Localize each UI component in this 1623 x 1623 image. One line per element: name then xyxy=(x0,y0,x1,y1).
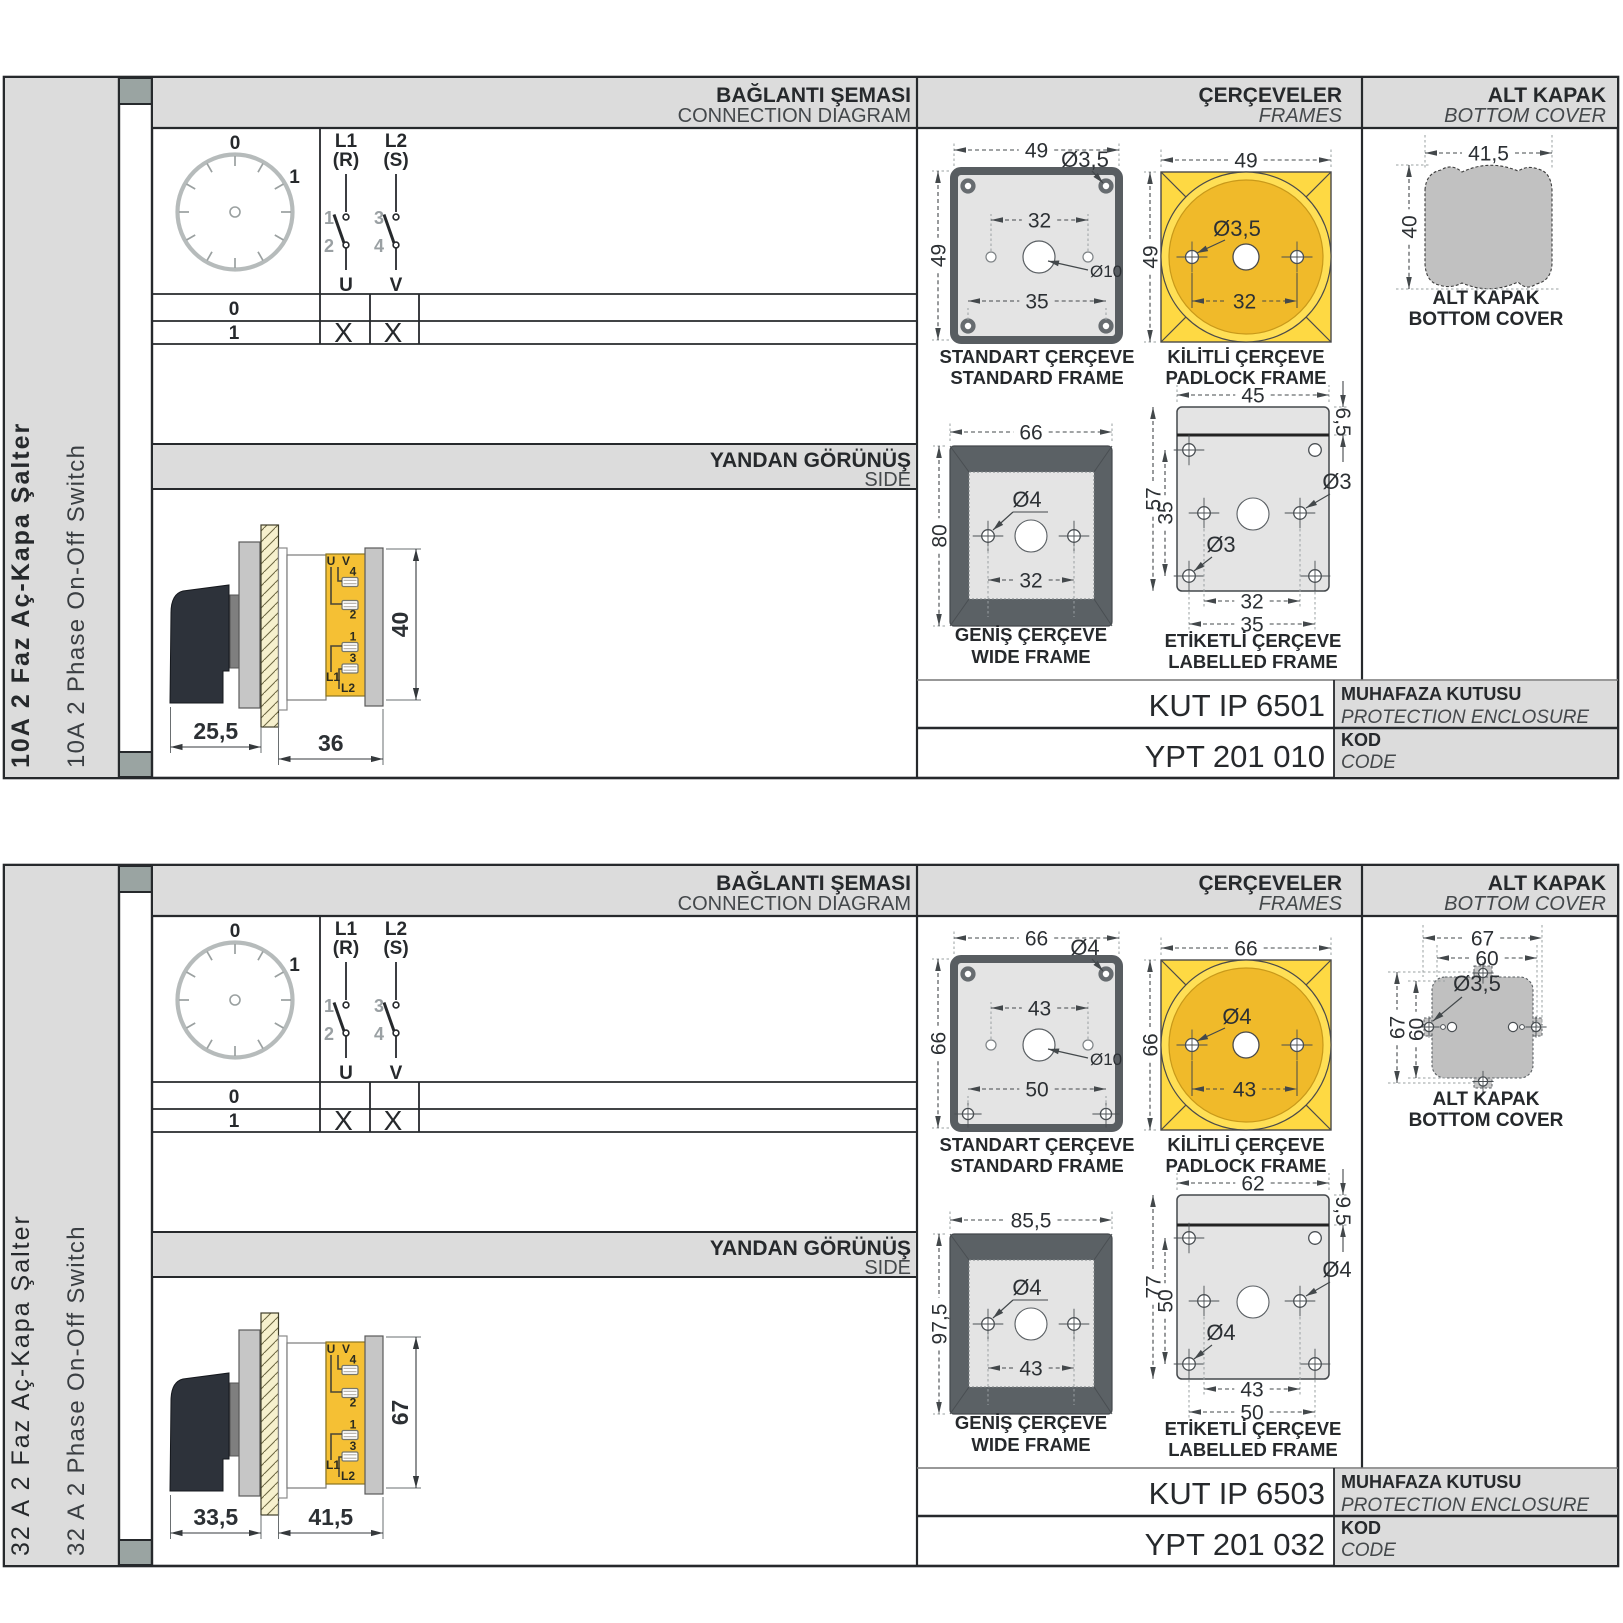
svg-text:10A 2 Phase On-Off Switch: 10A 2 Phase On-Off Switch xyxy=(63,444,90,768)
svg-text:KUT IP 6501: KUT IP 6501 xyxy=(1149,688,1325,723)
svg-text:U: U xyxy=(339,1063,353,1084)
svg-text:SIDE: SIDE xyxy=(864,469,911,491)
svg-text:BOTTOM COVER: BOTTOM COVER xyxy=(1409,1110,1564,1131)
svg-text:67: 67 xyxy=(387,1400,413,1426)
svg-text:66: 66 xyxy=(1234,938,1257,961)
svg-text:1: 1 xyxy=(350,1418,357,1432)
svg-text:L2: L2 xyxy=(385,919,407,940)
svg-text:MUHAFAZA KUTUSU: MUHAFAZA KUTUSU xyxy=(1341,684,1521,704)
svg-text:STANDART ÇERÇEVE: STANDART ÇERÇEVE xyxy=(940,1134,1135,1155)
svg-text:50: 50 xyxy=(1025,1079,1048,1102)
svg-text:ÇERÇEVELER: ÇERÇEVELER xyxy=(1198,84,1342,107)
svg-text:BOTTOM COVER: BOTTOM COVER xyxy=(1409,309,1564,330)
svg-text:Ø3,5: Ø3,5 xyxy=(1061,147,1109,172)
svg-text:66: 66 xyxy=(1019,422,1042,445)
svg-text:KİLİTLİ ÇERÇEVE: KİLİTLİ ÇERÇEVE xyxy=(1167,1134,1324,1155)
svg-text:Ø10: Ø10 xyxy=(1090,1050,1122,1069)
svg-text:L1: L1 xyxy=(326,1458,340,1472)
svg-text:1: 1 xyxy=(324,996,334,1016)
svg-text:2: 2 xyxy=(350,1396,357,1410)
svg-text:62: 62 xyxy=(1241,1173,1264,1196)
svg-text:43: 43 xyxy=(1233,1079,1256,1102)
svg-text:4: 4 xyxy=(374,236,384,256)
svg-text:49: 49 xyxy=(1140,245,1163,268)
svg-text:Ø3: Ø3 xyxy=(1322,469,1351,494)
svg-text:43: 43 xyxy=(1019,1358,1042,1381)
svg-text:49: 49 xyxy=(928,244,951,267)
svg-text:X: X xyxy=(384,317,403,348)
svg-text:ALT KAPAK: ALT KAPAK xyxy=(1488,872,1606,895)
svg-text:97,5: 97,5 xyxy=(929,1304,952,1345)
svg-text:V: V xyxy=(342,1342,350,1356)
svg-text:49: 49 xyxy=(1025,140,1048,163)
svg-text:4: 4 xyxy=(350,1353,357,1367)
svg-text:Ø4: Ø4 xyxy=(1206,1320,1235,1345)
svg-text:BAĞLANTI ŞEMASI: BAĞLANTI ŞEMASI xyxy=(716,83,911,107)
svg-text:1: 1 xyxy=(289,167,300,188)
svg-text:41,5: 41,5 xyxy=(308,1504,353,1530)
svg-text:2: 2 xyxy=(350,608,357,622)
svg-text:Ø3,5: Ø3,5 xyxy=(1213,216,1261,241)
svg-text:32 A 2 Faz Aç-Kapa Şalter: 32 A 2 Faz Aç-Kapa Şalter xyxy=(7,1214,35,1556)
svg-text:ALT KAPAK: ALT KAPAK xyxy=(1433,1089,1540,1110)
svg-text:ÇERÇEVELER: ÇERÇEVELER xyxy=(1198,872,1342,895)
svg-text:35: 35 xyxy=(1155,501,1178,524)
svg-text:YPT 201 032: YPT 201 032 xyxy=(1145,1527,1325,1562)
svg-text:PROTECTION ENCLOSURE: PROTECTION ENCLOSURE xyxy=(1341,707,1589,728)
svg-text:X: X xyxy=(384,1105,403,1136)
svg-text:35: 35 xyxy=(1025,291,1048,314)
svg-text:40: 40 xyxy=(387,612,413,638)
svg-text:Ø3: Ø3 xyxy=(1206,532,1235,557)
svg-text:0: 0 xyxy=(229,1087,240,1108)
svg-text:V: V xyxy=(390,275,403,296)
svg-text:L1: L1 xyxy=(335,131,358,152)
svg-text:WIDE FRAME: WIDE FRAME xyxy=(971,646,1090,667)
svg-text:0: 0 xyxy=(229,299,240,320)
svg-text:Ø4: Ø4 xyxy=(1222,1004,1251,1029)
svg-text:YPT 201 010: YPT 201 010 xyxy=(1145,739,1325,774)
svg-text:43: 43 xyxy=(1028,998,1051,1021)
svg-text:X: X xyxy=(334,317,353,348)
svg-text:V: V xyxy=(342,554,350,568)
svg-text:45: 45 xyxy=(1241,385,1264,408)
svg-text:33,5: 33,5 xyxy=(193,1504,238,1530)
svg-text:1: 1 xyxy=(324,208,334,228)
svg-text:V: V xyxy=(390,1063,403,1084)
svg-text:4: 4 xyxy=(374,1024,384,1044)
svg-text:GENİŞ ÇERÇEVE: GENİŞ ÇERÇEVE xyxy=(955,1412,1107,1433)
svg-text:(S): (S) xyxy=(383,150,408,171)
svg-text:66: 66 xyxy=(1140,1033,1163,1056)
svg-text:U: U xyxy=(327,554,336,568)
svg-text:KOD: KOD xyxy=(1341,730,1381,750)
svg-text:32: 32 xyxy=(1240,591,1263,614)
svg-text:9,5: 9,5 xyxy=(1331,1196,1354,1225)
svg-text:2: 2 xyxy=(324,1024,334,1044)
svg-text:L1: L1 xyxy=(326,670,340,684)
svg-text:25,5: 25,5 xyxy=(193,718,238,744)
svg-text:Ø4: Ø4 xyxy=(1012,487,1041,512)
svg-text:L1: L1 xyxy=(335,919,358,940)
svg-text:Ø4: Ø4 xyxy=(1322,1257,1351,1282)
svg-text:43: 43 xyxy=(1240,1379,1263,1402)
svg-text:U: U xyxy=(327,1342,336,1356)
svg-text:6,5: 6,5 xyxy=(1331,407,1354,436)
svg-text:40: 40 xyxy=(1399,215,1422,238)
svg-text:FRAMES: FRAMES xyxy=(1259,893,1343,915)
svg-text:32: 32 xyxy=(1028,210,1051,233)
svg-text:32: 32 xyxy=(1019,570,1042,593)
svg-text:0: 0 xyxy=(230,133,241,154)
svg-text:32 A 2 Phase On-Off Switch: 32 A 2 Phase On-Off Switch xyxy=(63,1225,90,1556)
svg-text:Ø4: Ø4 xyxy=(1012,1275,1041,1300)
svg-text:SIDE: SIDE xyxy=(864,1257,911,1279)
svg-text:STANDART ÇERÇEVE: STANDART ÇERÇEVE xyxy=(940,346,1135,367)
svg-text:ALT KAPAK: ALT KAPAK xyxy=(1488,84,1606,107)
svg-text:60: 60 xyxy=(1406,1018,1429,1041)
svg-text:GENİŞ ÇERÇEVE: GENİŞ ÇERÇEVE xyxy=(955,624,1107,645)
svg-text:LABELLED FRAME: LABELLED FRAME xyxy=(1168,1439,1338,1460)
svg-text:MUHAFAZA KUTUSU: MUHAFAZA KUTUSU xyxy=(1341,1472,1521,1492)
svg-text:WIDE FRAME: WIDE FRAME xyxy=(971,1434,1090,1455)
svg-text:ETİKETLİ ÇERÇEVE: ETİKETLİ ÇERÇEVE xyxy=(1165,630,1342,651)
svg-text:0: 0 xyxy=(230,921,241,942)
svg-text:U: U xyxy=(339,275,353,296)
svg-text:41,5: 41,5 xyxy=(1468,143,1509,166)
svg-text:3: 3 xyxy=(374,208,384,228)
svg-text:66: 66 xyxy=(928,1032,951,1055)
svg-text:CODE: CODE xyxy=(1341,752,1396,773)
svg-text:32: 32 xyxy=(1233,291,1256,314)
svg-text:STANDARD FRAME: STANDARD FRAME xyxy=(950,367,1123,388)
svg-text:3: 3 xyxy=(350,651,357,665)
svg-text:10A 2 Faz Aç-Kapa Şalter: 10A 2 Faz Aç-Kapa Şalter xyxy=(7,422,35,768)
svg-text:66: 66 xyxy=(1025,928,1048,951)
svg-text:3: 3 xyxy=(374,996,384,1016)
svg-text:1: 1 xyxy=(229,1111,240,1132)
svg-text:Ø4: Ø4 xyxy=(1070,935,1099,960)
svg-text:(R): (R) xyxy=(333,150,359,171)
svg-text:LABELLED FRAME: LABELLED FRAME xyxy=(1168,651,1338,672)
svg-text:60: 60 xyxy=(1475,948,1498,971)
svg-text:ALT KAPAK: ALT KAPAK xyxy=(1433,288,1540,309)
svg-text:X: X xyxy=(334,1105,353,1136)
svg-text:1: 1 xyxy=(289,955,300,976)
svg-text:49: 49 xyxy=(1234,150,1257,173)
svg-text:BAĞLANTI ŞEMASI: BAĞLANTI ŞEMASI xyxy=(716,871,911,895)
svg-text:ETİKETLİ ÇERÇEVE: ETİKETLİ ÇERÇEVE xyxy=(1165,1418,1342,1439)
svg-text:4: 4 xyxy=(350,565,357,579)
svg-text:STANDARD FRAME: STANDARD FRAME xyxy=(950,1155,1123,1176)
svg-text:CONNECTION DIAGRAM: CONNECTION DIAGRAM xyxy=(678,893,911,915)
svg-text:2: 2 xyxy=(324,236,334,256)
svg-text:(S): (S) xyxy=(383,938,408,959)
svg-text:3: 3 xyxy=(350,1439,357,1453)
svg-text:85,5: 85,5 xyxy=(1011,1210,1052,1233)
svg-text:Ø10: Ø10 xyxy=(1090,262,1122,281)
svg-text:1: 1 xyxy=(229,323,240,344)
svg-text:CONNECTION DIAGRAM: CONNECTION DIAGRAM xyxy=(678,105,911,127)
svg-text:1: 1 xyxy=(350,630,357,644)
svg-text:BOTTOM COVER: BOTTOM COVER xyxy=(1444,893,1606,915)
svg-text:36: 36 xyxy=(318,730,344,756)
svg-text:L2: L2 xyxy=(385,131,407,152)
svg-text:L2: L2 xyxy=(341,681,355,695)
svg-text:KİLİTLİ ÇERÇEVE: KİLİTLİ ÇERÇEVE xyxy=(1167,346,1324,367)
svg-text:L2: L2 xyxy=(341,1469,355,1483)
svg-text:BOTTOM COVER: BOTTOM COVER xyxy=(1444,105,1606,127)
svg-text:(R): (R) xyxy=(333,938,359,959)
svg-text:CODE: CODE xyxy=(1341,1540,1396,1561)
svg-text:KUT IP 6503: KUT IP 6503 xyxy=(1149,1476,1325,1511)
svg-text:80: 80 xyxy=(929,524,952,547)
svg-text:50: 50 xyxy=(1155,1289,1178,1312)
svg-text:KOD: KOD xyxy=(1341,1518,1381,1538)
svg-text:Ø3,5: Ø3,5 xyxy=(1453,971,1501,996)
svg-text:PROTECTION ENCLOSURE: PROTECTION ENCLOSURE xyxy=(1341,1495,1589,1516)
svg-text:FRAMES: FRAMES xyxy=(1259,105,1343,127)
